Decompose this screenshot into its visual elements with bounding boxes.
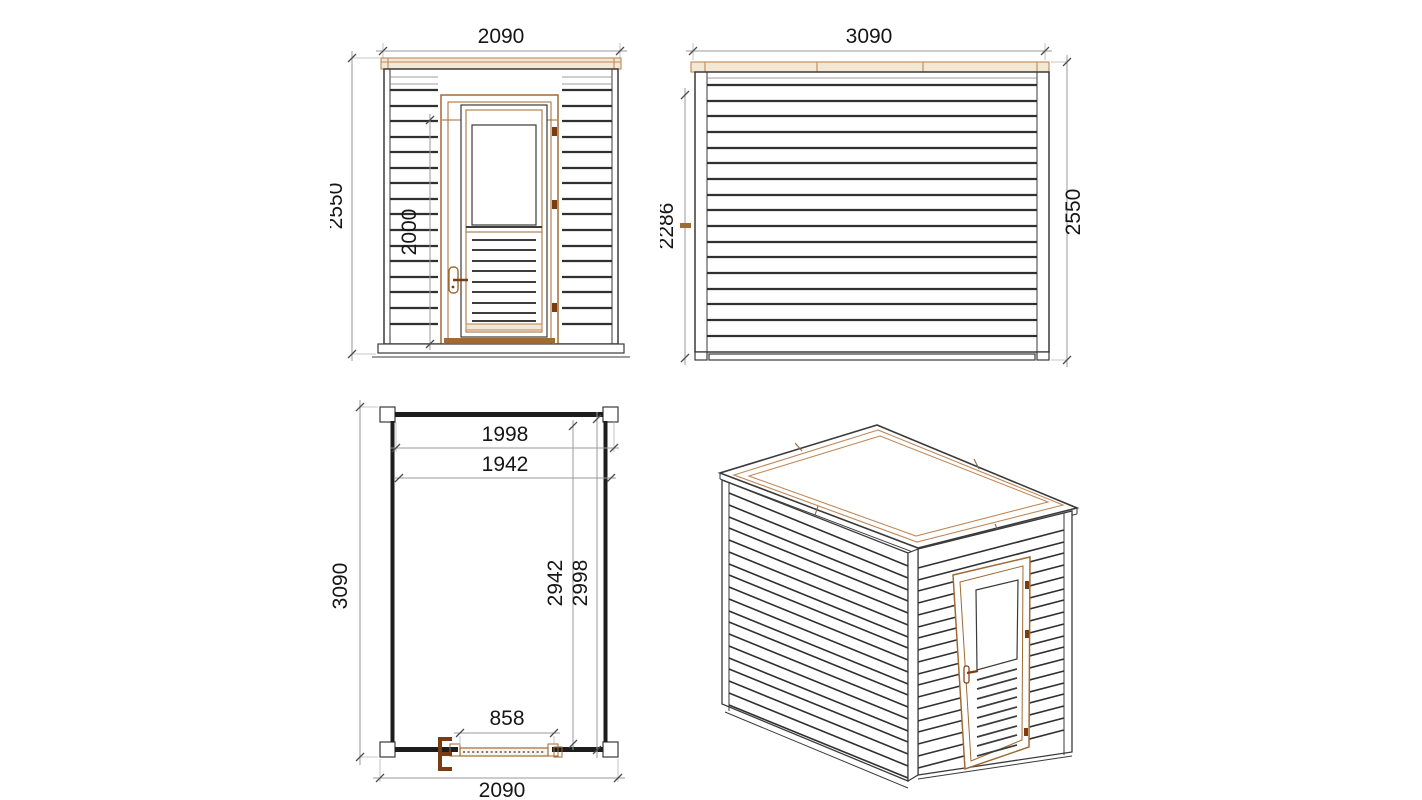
front-door bbox=[441, 95, 558, 344]
front-width-label: 2090 bbox=[478, 25, 525, 48]
plan-width-label: 2090 bbox=[479, 779, 526, 800]
side-width-label: 3090 bbox=[846, 25, 893, 48]
isometric-view bbox=[690, 400, 1170, 800]
front-elevation-view: 2090 bbox=[330, 10, 660, 390]
side-wall-height-dimension: 2286 bbox=[660, 88, 691, 365]
front-height-dimension: 2550 bbox=[330, 51, 380, 361]
plan-inner-length-b-dimension: 2998 bbox=[569, 412, 601, 758]
side-wall-height-label: 2286 bbox=[660, 203, 678, 250]
side-vent-mark bbox=[680, 223, 691, 228]
isometric-drawing bbox=[690, 400, 1170, 800]
plan-door-width-label: 858 bbox=[489, 707, 524, 730]
front-roof bbox=[381, 58, 621, 69]
front-elevation-drawing: 2090 bbox=[330, 10, 660, 390]
plan-inner-width-b-dimension: 1942 bbox=[394, 453, 616, 482]
side-roof bbox=[691, 62, 1049, 72]
side-elevation-drawing: 3090 bbox=[660, 10, 1130, 390]
iso-door-glass bbox=[976, 580, 1018, 670]
plan-door bbox=[440, 739, 562, 769]
plan-door-width-dimension: 858 bbox=[454, 707, 560, 745]
floor-plan-drawing: 1998 1942 3090 2942 bbox=[330, 390, 660, 800]
plan-inner-length-b-label: 2998 bbox=[569, 560, 592, 607]
technical-drawing-canvas: 2090 bbox=[0, 0, 1422, 800]
front-door-glass bbox=[472, 125, 536, 225]
plan-length-dimension: 3090 bbox=[330, 400, 378, 765]
iso-front-corner-trim bbox=[908, 549, 918, 781]
front-base bbox=[372, 344, 630, 357]
side-elevation-view: 3090 bbox=[660, 10, 1130, 390]
side-height-dimension: 2550 bbox=[1051, 55, 1085, 367]
plan-width-dimension: 2090 bbox=[373, 759, 625, 800]
front-height-label: 2550 bbox=[330, 183, 347, 230]
side-base bbox=[695, 352, 1049, 360]
plan-inner-length-a-label: 2942 bbox=[544, 560, 567, 607]
plan-inner-width-b-label: 1942 bbox=[482, 453, 529, 476]
plan-inner-width-a-label: 1998 bbox=[482, 423, 529, 446]
side-height-label: 2550 bbox=[1062, 189, 1085, 236]
front-door-height-label: 2000 bbox=[398, 209, 421, 256]
iso-door bbox=[953, 557, 1030, 769]
plan-inner-width-a-dimension: 1998 bbox=[391, 422, 619, 452]
plan-length-label: 3090 bbox=[330, 563, 352, 610]
side-walls bbox=[695, 72, 1049, 352]
front-door-sill bbox=[444, 338, 555, 343]
floor-plan-view: 1998 1942 3090 2942 bbox=[330, 390, 660, 800]
side-width-dimension: 3090 bbox=[686, 25, 1052, 60]
